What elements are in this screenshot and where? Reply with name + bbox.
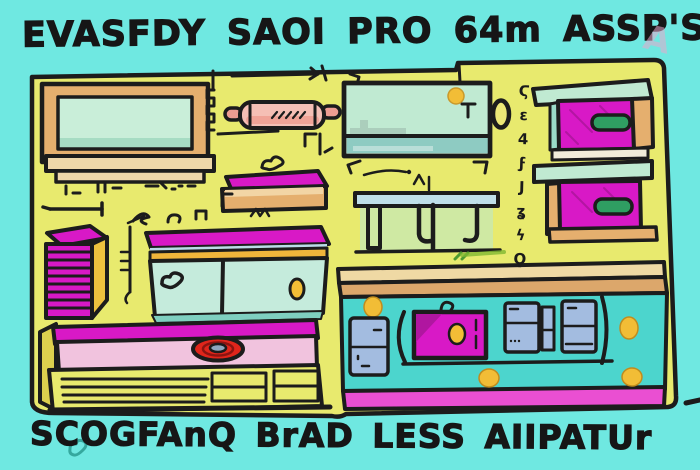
kitchen-drawing	[0, 0, 700, 470]
yellow-dot	[620, 317, 638, 339]
magenta-panel	[414, 302, 486, 358]
counter-drawer-sliver	[542, 307, 554, 350]
title-text: EVASFDY SAOI PRO 64m ASSP'S	[22, 8, 700, 55]
caption-text: SCOGFAnQ BrAD LESS AIIPATUr	[30, 414, 652, 457]
drawer-unit-top	[533, 80, 653, 160]
cabinet-door-knob	[290, 279, 304, 299]
drawer-handle	[592, 115, 630, 130]
dresser	[40, 320, 330, 412]
vertical-glyph-column: Ϛε4ϝЈʓϟϘ	[502, 82, 533, 278]
window-ledge	[56, 171, 204, 182]
cabinet-knob	[448, 88, 464, 104]
illustration-canvas: EVASFDY SAOI PRO 64m ASSP'S SCOGFAnQ BrA…	[0, 0, 700, 470]
yellow-dot	[479, 369, 499, 387]
yellow-dot	[364, 297, 382, 317]
yellow-dot	[622, 368, 642, 386]
stray-dash	[686, 400, 700, 403]
drawer-handle	[595, 199, 632, 214]
red-knob	[193, 338, 243, 361]
table-leg	[368, 206, 380, 248]
drawer-unit-bottom	[534, 161, 657, 242]
radiator-box	[46, 226, 107, 318]
upper-cabinet	[344, 83, 490, 156]
counter-drawer	[505, 303, 539, 352]
window-sill	[46, 156, 214, 171]
rolling-pin	[225, 102, 340, 128]
center-cabinet	[146, 227, 329, 323]
window	[42, 84, 214, 194]
kitchen-counter	[338, 262, 667, 409]
side-table	[355, 193, 504, 259]
cutting-board	[222, 171, 327, 216]
panel-knob	[449, 324, 465, 344]
